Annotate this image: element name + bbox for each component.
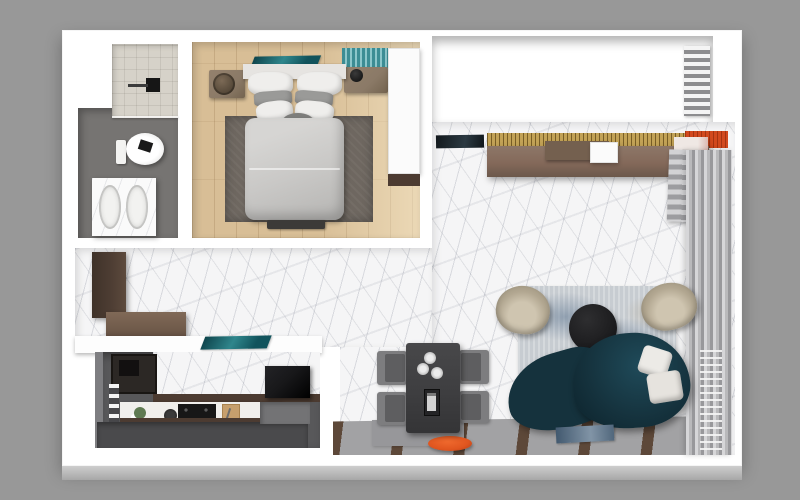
white-storage-box [590, 142, 618, 163]
slab-front-face [62, 466, 742, 480]
entry-cabinet [92, 252, 126, 318]
dining-chair [377, 392, 407, 425]
bedroom-floor [192, 42, 420, 238]
dining-chair [459, 391, 489, 423]
dining-table [406, 343, 460, 433]
tv-panel [436, 135, 484, 149]
plate [424, 352, 436, 364]
sofa-pillow [646, 370, 684, 405]
bed [243, 64, 346, 222]
dining-chair [377, 351, 407, 385]
plate [431, 367, 443, 379]
kitchen-sink [119, 360, 139, 376]
kitchen-half-wall [75, 336, 322, 353]
chair-seat [461, 353, 481, 381]
toilet-tank [116, 140, 126, 164]
chair-seat [385, 354, 405, 382]
orange-stool [428, 436, 472, 451]
chair-seat [461, 394, 481, 420]
shower-glass-partition [112, 116, 178, 118]
kitchen-island [97, 422, 308, 448]
plate [417, 363, 429, 375]
balcony-floor [432, 36, 713, 122]
sink-left [99, 185, 121, 229]
duvet-fold [249, 168, 340, 170]
fridge [265, 366, 310, 398]
floor-plan-stage [0, 0, 800, 500]
bedroom-wardrobe [388, 48, 420, 174]
sink-right [126, 185, 148, 229]
remote-icon [427, 393, 436, 411]
dining-chair [459, 350, 489, 384]
wardrobe-base [388, 174, 420, 186]
chair-seat [385, 395, 405, 422]
shower-arm-icon [128, 84, 148, 87]
magazine [556, 424, 615, 443]
radiator-icon [700, 350, 722, 450]
lamp-icon [350, 69, 363, 82]
louver-grate [684, 46, 710, 116]
shower-area [112, 44, 178, 118]
foot-bench [267, 220, 325, 229]
kitchen-floor [95, 352, 320, 448]
basket-icon [213, 73, 235, 95]
counter-step [260, 402, 310, 424]
teal-striped-blind [342, 48, 390, 68]
shower-head-icon [146, 78, 160, 92]
teal-floor-mat [200, 335, 271, 349]
